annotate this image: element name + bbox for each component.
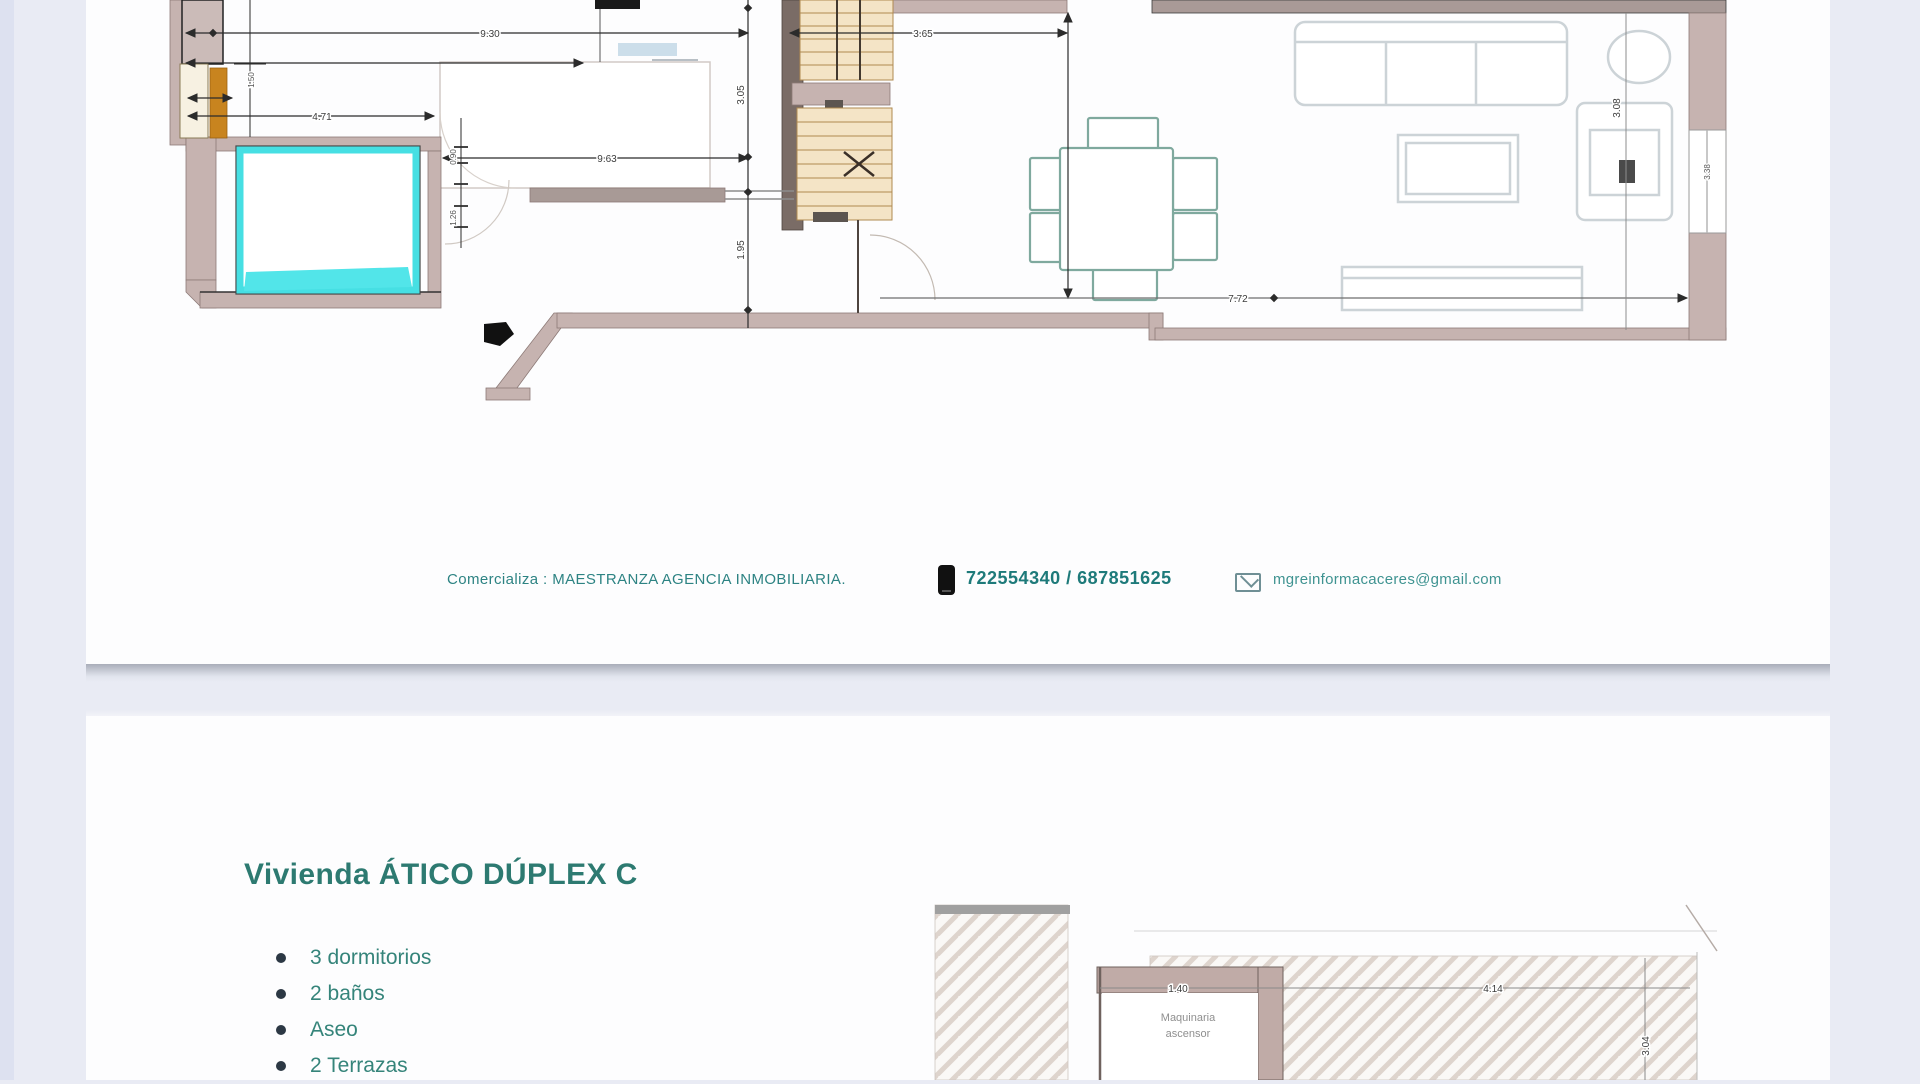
door-swing-arc bbox=[870, 235, 935, 300]
dim-label: 4.71 bbox=[312, 112, 332, 123]
dim-label: 3.05 bbox=[736, 85, 747, 105]
glass-box bbox=[236, 146, 420, 294]
machine-room: Maquinaria ascensor bbox=[1097, 967, 1283, 1080]
screenshot-root: { "page1": { "contact": { "agency_line":… bbox=[0, 0, 1920, 1080]
living-furniture bbox=[1295, 22, 1672, 310]
dim-label: 9.63 bbox=[597, 154, 617, 165]
dim-label: 7.72 bbox=[1228, 294, 1248, 305]
dim-label: 3.08 bbox=[1612, 98, 1623, 118]
wall-unit bbox=[1619, 160, 1635, 183]
side-table bbox=[1608, 31, 1670, 83]
coffee-table bbox=[1398, 135, 1518, 202]
wall-notch bbox=[595, 0, 640, 9]
tv-bench bbox=[1342, 267, 1582, 310]
dim-label: 9.30 bbox=[480, 29, 500, 40]
email-icon bbox=[1235, 573, 1261, 592]
plan-marker bbox=[484, 322, 514, 346]
dim-label: 1.50 bbox=[247, 72, 256, 88]
staircase bbox=[797, 0, 935, 313]
dim-label: 3.38 bbox=[1703, 164, 1712, 180]
dim-label: 0.90 bbox=[449, 149, 458, 165]
viewer-left-margin bbox=[0, 0, 14, 1080]
dim-label: 3.04 bbox=[1641, 1036, 1652, 1056]
sofa bbox=[1295, 22, 1567, 105]
terrace-plan: Maquinaria ascensor 1.40 4.14 3.04 bbox=[86, 716, 1830, 1080]
phone-numbers: 722554340 / 687851625 bbox=[966, 568, 1172, 589]
email-text: mgreinformacaceres@gmail.com bbox=[1273, 571, 1502, 588]
contact-line: Comercializa : MAESTRANZA AGENCIA INMOBI… bbox=[447, 558, 1707, 602]
dim-label: 1.40 bbox=[1168, 984, 1188, 995]
window bbox=[1689, 130, 1726, 233]
dim-label: 4.14 bbox=[1483, 984, 1503, 995]
plan-note-box bbox=[618, 43, 677, 56]
phone-icon bbox=[938, 565, 955, 595]
document-page-1: 9.30 3.65 4.71 9.63 7.72 3.05 1.95 1.50 … bbox=[86, 0, 1830, 664]
agency-text: Comercializa : MAESTRANZA AGENCIA INMOBI… bbox=[447, 571, 846, 588]
bedroom-outline bbox=[440, 43, 710, 188]
entry-door bbox=[180, 64, 227, 138]
page-gap-shadow bbox=[86, 664, 1830, 682]
terrace-hatch bbox=[935, 905, 1717, 1080]
dining-set bbox=[1030, 118, 1217, 300]
room-label: ascensor bbox=[1166, 1028, 1211, 1040]
document-page-2: Vivienda ÁTICO DÚPLEX C 3 dormitorios 2 … bbox=[86, 716, 1830, 1080]
room-label: Maquinaria bbox=[1161, 1012, 1216, 1024]
dim-label: 3.65 bbox=[913, 29, 933, 40]
dim-label: 1.26 bbox=[449, 210, 458, 226]
dim-label: 1.95 bbox=[736, 240, 747, 260]
